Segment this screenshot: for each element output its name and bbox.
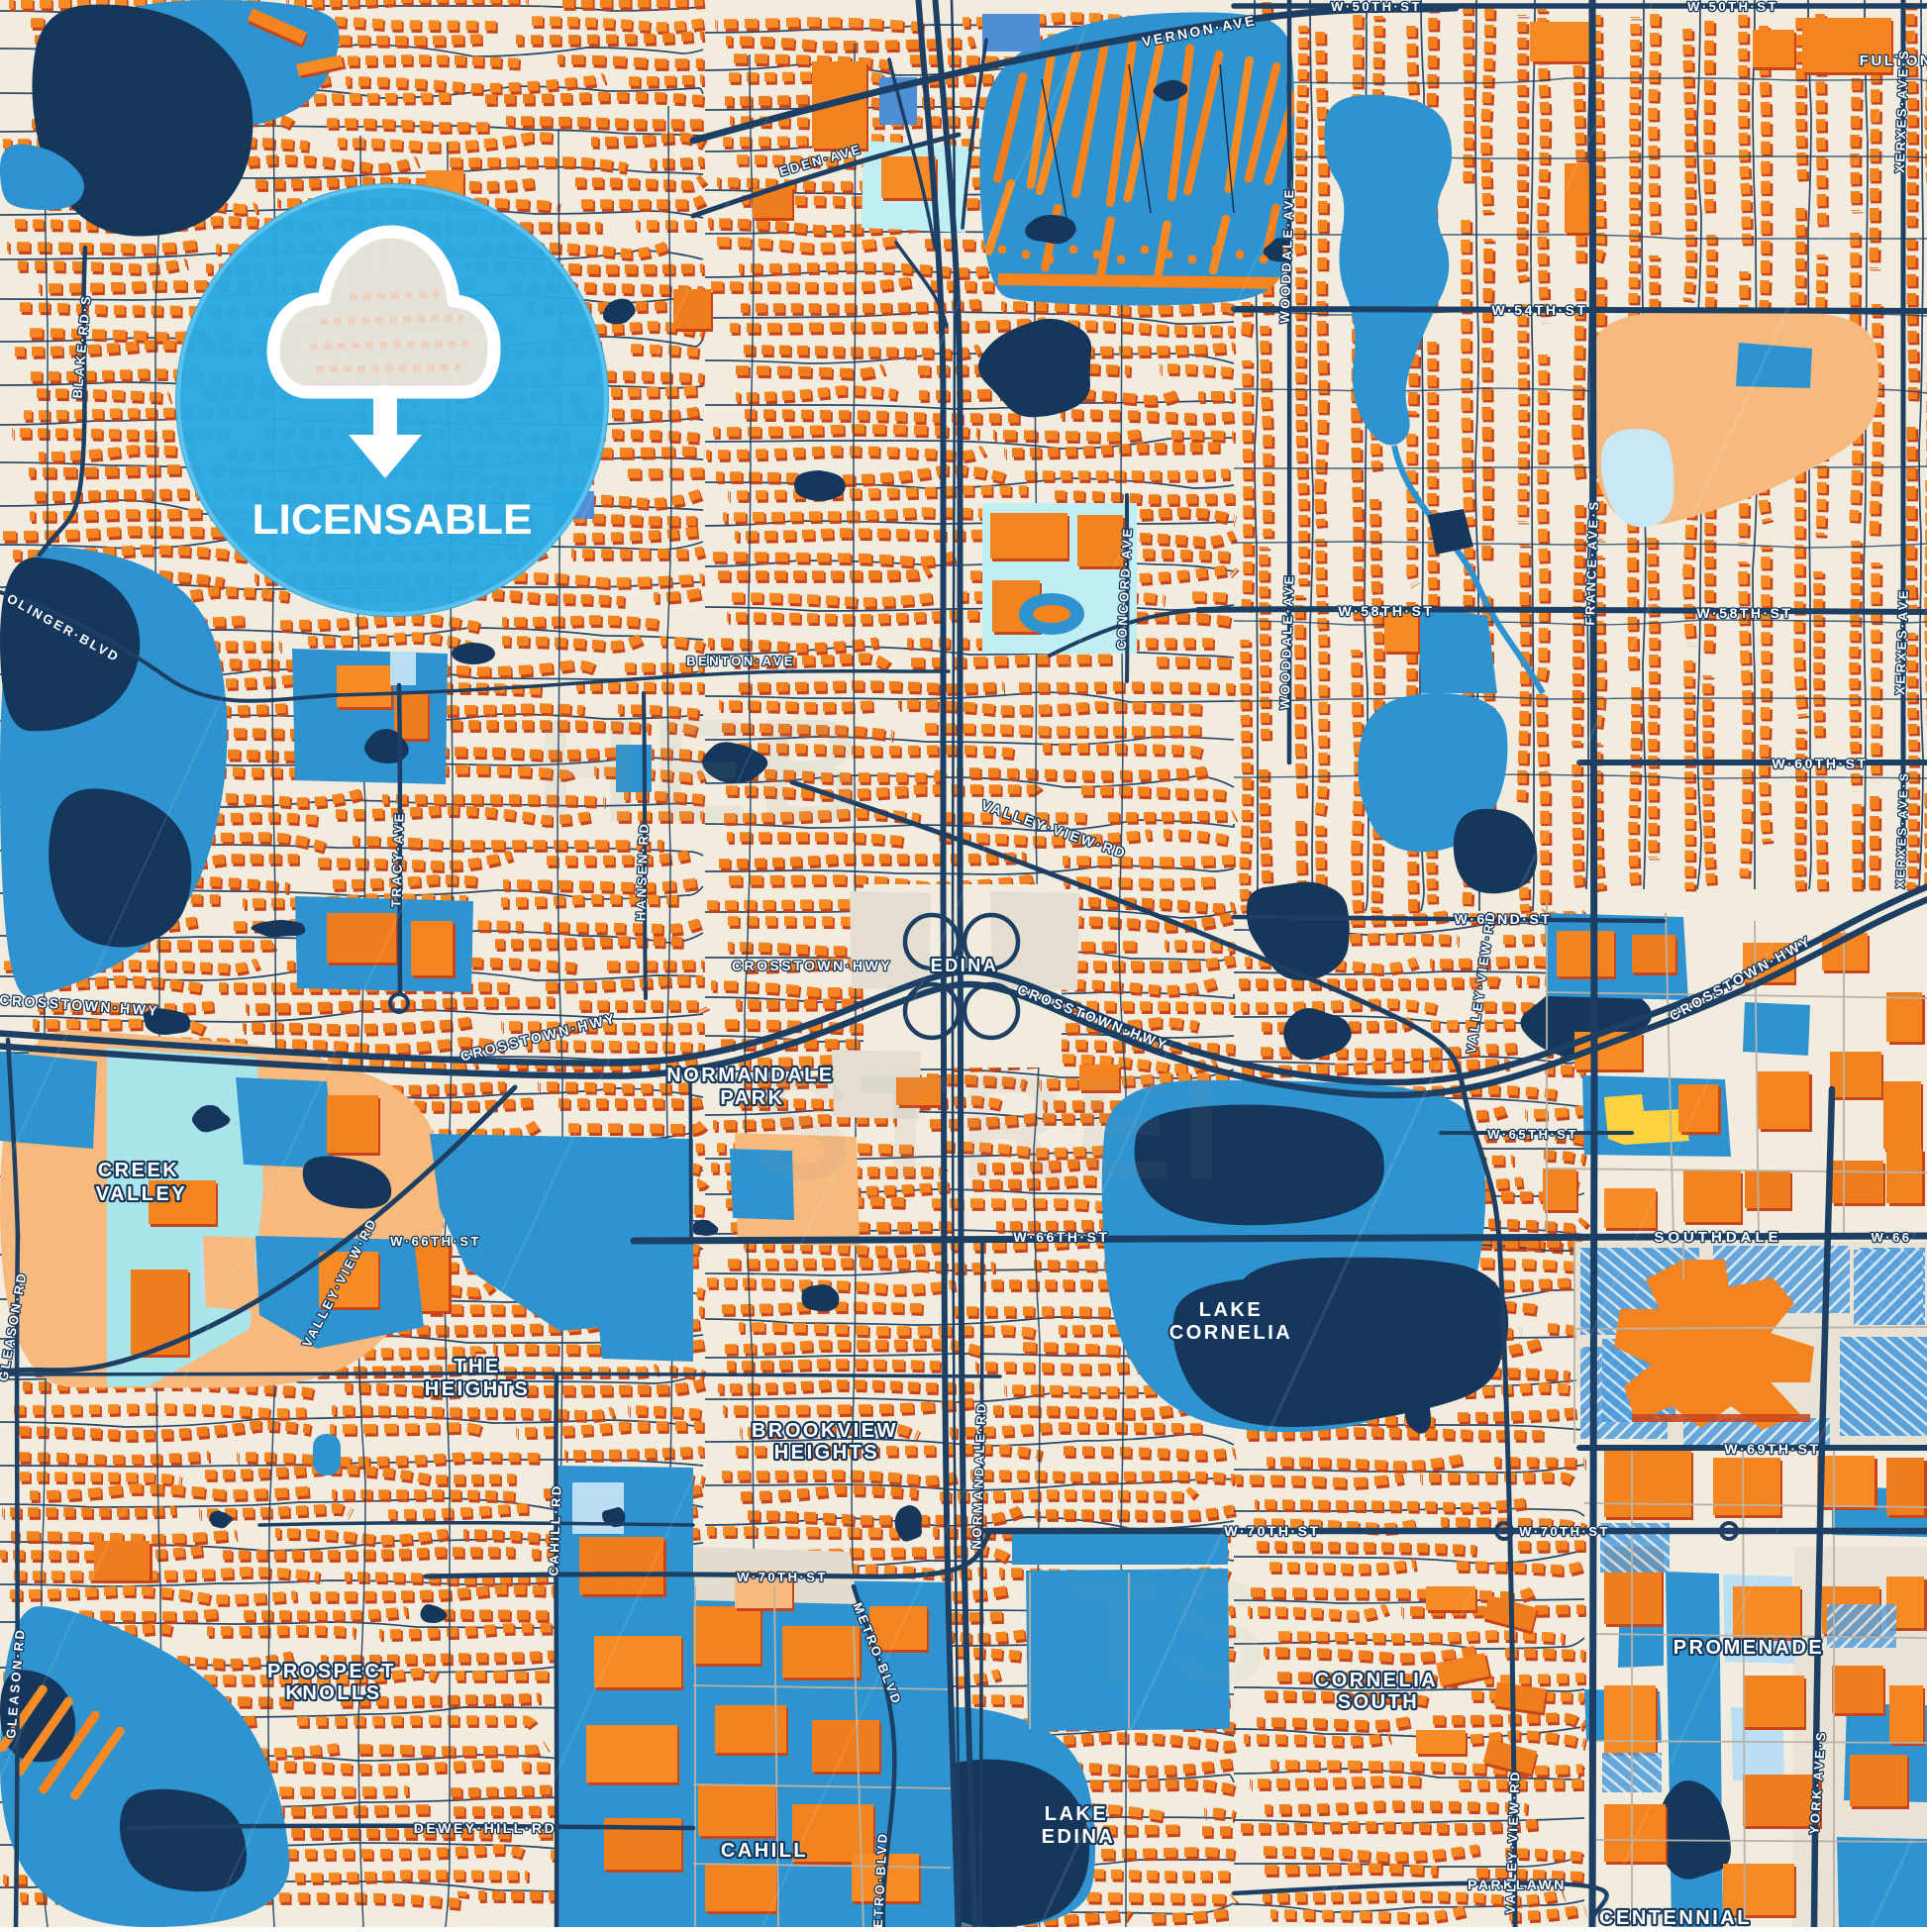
svg-text:W·69TH·ST: W·69TH·ST	[1724, 1441, 1820, 1457]
svg-text:CROSSTOWN·HWY: CROSSTOWN·HWY	[732, 958, 892, 973]
svg-text:CORNELIA: CORNELIA	[1169, 1322, 1292, 1344]
svg-text:W·60TH·ST: W·60TH·ST	[1772, 756, 1868, 771]
svg-text:VALLEY: VALLEY	[96, 1183, 187, 1205]
svg-text:SOUTHDALE: SOUTHDALE	[1654, 1229, 1781, 1246]
svg-text:PROMENADE: PROMENADE	[1673, 1637, 1825, 1659]
svg-text:CREEK: CREEK	[98, 1160, 180, 1181]
svg-text:HEB: HEB	[535, 687, 872, 854]
svg-text:W·70TH·ST: W·70TH·ST	[737, 1570, 828, 1584]
svg-text:EDINA: EDINA	[931, 956, 999, 975]
svg-text:W·65TH·ST: W·65TH·ST	[1487, 1127, 1578, 1142]
svg-text:W·70TH·ST: W·70TH·ST	[1519, 1524, 1610, 1539]
svg-text:CORNELIA: CORNELIA	[1315, 1670, 1438, 1691]
svg-text:PROSPECT: PROSPECT	[267, 1661, 396, 1682]
svg-text:LAKE: LAKE	[1199, 1299, 1263, 1321]
svg-text:THE: THE	[454, 1356, 501, 1377]
svg-text:STREI: STREI	[753, 1044, 1230, 1210]
svg-text:W·58TH·ST: W·58TH·ST	[1338, 603, 1434, 619]
svg-text:SOUTH: SOUTH	[1338, 1691, 1420, 1713]
svg-text:W·70TH·ST: W·70TH·ST	[1224, 1523, 1320, 1539]
svg-text:W·58TH·ST: W·58TH·ST	[1696, 605, 1792, 621]
svg-text:CENTENNIAL: CENTENNIAL	[1599, 1907, 1752, 1927]
svg-text:LAKE: LAKE	[1045, 1803, 1108, 1825]
svg-text:LICENSABLE: LICENSABLE	[253, 496, 533, 544]
svg-text:HEIGHTS: HEIGHTS	[774, 1442, 879, 1464]
svg-text:W·66: W·66	[1871, 1230, 1911, 1245]
svg-text:W·66TH·ST: W·66TH·ST	[390, 1234, 481, 1249]
svg-text:HEIGHTS: HEIGHTS	[425, 1378, 530, 1400]
svg-text:W·50TH·ST: W·50TH·ST	[1687, 0, 1778, 14]
svg-text:FULTON: FULTON	[1860, 52, 1927, 69]
svg-text:TS: TS	[1069, 1549, 1275, 1715]
svg-text:DEWEY·HILL·RD: DEWEY·HILL·RD	[414, 1820, 558, 1836]
svg-text:W·66TH·ST: W·66TH·ST	[1013, 1229, 1109, 1245]
svg-text:W·54TH·ST: W·54TH·ST	[1491, 302, 1587, 318]
svg-text:KNOLLS: KNOLLS	[285, 1682, 381, 1704]
svg-text:BENTON·AVE: BENTON·AVE	[686, 654, 795, 668]
svg-text:BROOKVIEW: BROOKVIEW	[752, 1420, 898, 1442]
